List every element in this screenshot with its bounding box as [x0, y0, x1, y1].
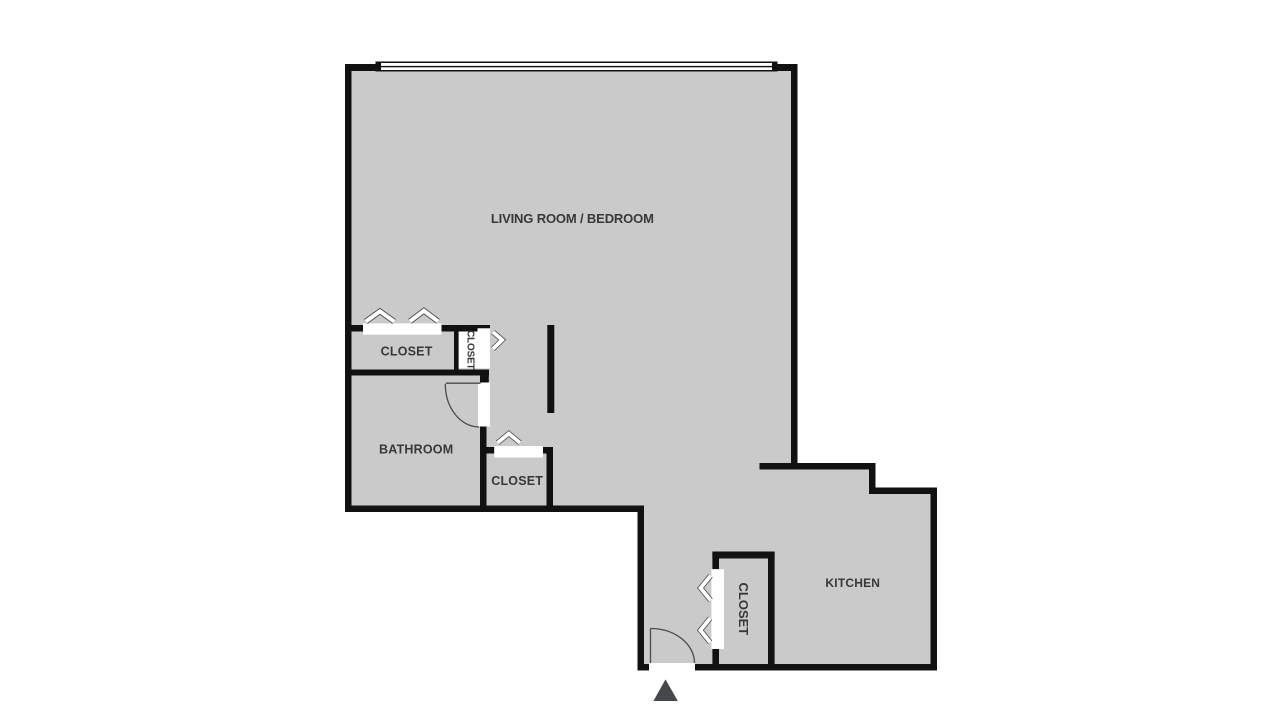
svg-text:CLOSET: CLOSET: [736, 583, 751, 636]
svg-text:KITCHEN: KITCHEN: [825, 576, 880, 590]
svg-text:CLOSET: CLOSET: [491, 474, 543, 488]
svg-text:BATHROOM: BATHROOM: [379, 443, 453, 457]
svg-text:CLOSET: CLOSET: [465, 330, 476, 369]
svg-text:CLOSET: CLOSET: [381, 344, 433, 358]
svg-text:LIVING ROOM / BEDROOM: LIVING ROOM / BEDROOM: [491, 211, 654, 226]
